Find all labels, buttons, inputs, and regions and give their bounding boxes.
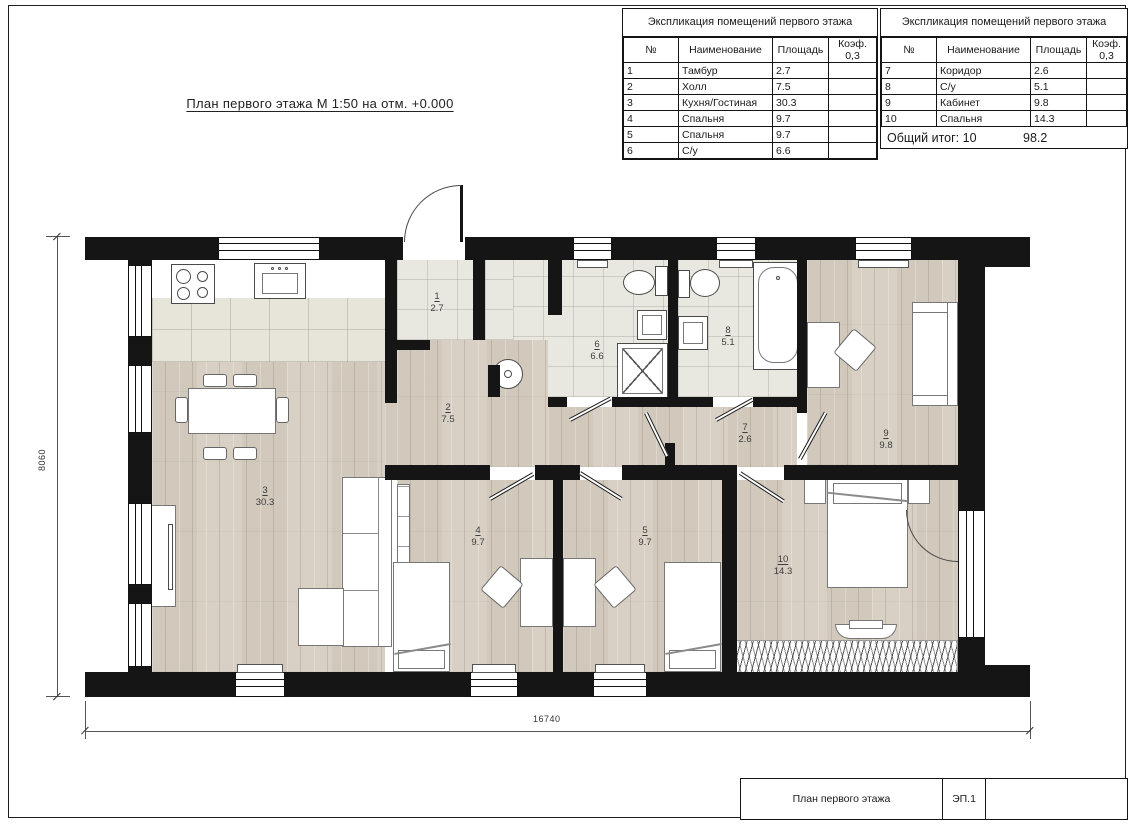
table-cell: 1	[624, 63, 679, 79]
wall-segment	[85, 237, 218, 260]
room-area: 7.5	[441, 414, 454, 425]
nightstand	[804, 478, 826, 504]
room-label-2: 2 7.5	[425, 402, 471, 427]
table-row: 9Кабинет9.8	[882, 95, 1127, 111]
wall-segment	[85, 672, 235, 697]
table-row: 5Спальня9.7	[624, 127, 877, 143]
wall-segment	[647, 672, 1030, 697]
room-area: 6.6	[590, 351, 603, 362]
table-cell: Спальня	[679, 111, 773, 127]
room-number: 4	[455, 525, 501, 537]
wall-segment	[756, 237, 855, 260]
table-cell: 6	[624, 143, 679, 159]
room-number: 7	[722, 422, 768, 434]
table-cell: Кабинет	[937, 95, 1031, 111]
table-grid: №НаименованиеПлощадьКоэф. 0,37Коридор2.6…	[881, 37, 1127, 127]
room-label-10: 10 14.3	[760, 554, 806, 579]
table-cell	[829, 111, 877, 127]
room-label-1: 1 2.7	[414, 291, 460, 316]
table-header-row: №НаименованиеПлощадьКоэф. 0,3	[882, 38, 1127, 63]
room-area: 9.7	[638, 537, 651, 548]
room-number: 2	[425, 402, 471, 414]
table-title: Экспликация помещений первого этажа	[881, 9, 1127, 37]
bed-footboard	[398, 650, 445, 669]
title-block: План первого этажа ЭП.1	[740, 778, 1128, 820]
table-row: 8С/у5.1	[882, 79, 1127, 95]
table-cell	[829, 95, 877, 111]
total-label: Общий итог: 10	[887, 131, 1023, 145]
wall-segment	[548, 397, 567, 407]
column-header: Коэф. 0,3	[1087, 38, 1127, 63]
table-cell: 8	[882, 79, 937, 95]
room-number: 1	[414, 291, 460, 303]
table-row: 10Спальня14.3	[882, 111, 1127, 127]
window	[593, 672, 647, 697]
window	[128, 265, 152, 337]
column-header: Площадь	[1031, 38, 1087, 63]
room-number: 10	[760, 554, 806, 566]
wall-segment	[548, 260, 562, 315]
dining-chair	[203, 374, 227, 387]
table-cell: 4	[624, 111, 679, 127]
wall-segment	[958, 260, 985, 510]
wall-segment	[385, 340, 430, 350]
window-sill	[595, 664, 645, 673]
balcony-door-window	[958, 510, 985, 638]
table-total-row: Общий итог: 10 98.2	[881, 127, 1127, 148]
table-cell: 6.6	[773, 143, 829, 159]
dimension-line-vertical	[57, 237, 58, 697]
table-cell: 7.5	[773, 79, 829, 95]
stove-burner	[197, 287, 208, 298]
dimension-line-horizontal	[85, 731, 1030, 732]
bed-footboard	[669, 650, 716, 669]
wall-segment	[535, 465, 580, 480]
room-number: 9	[863, 428, 909, 440]
wall-segment	[385, 260, 397, 403]
table-title: Экспликация помещений первого этажа	[623, 9, 877, 37]
title-block-empty-cell	[986, 779, 1127, 819]
table-cell: 5.1	[1031, 79, 1087, 95]
table-cell: Кухня/Гостиная	[679, 95, 773, 111]
table-row: 6С/у6.6	[624, 143, 877, 159]
title-block-sheet-code: ЭП.1	[942, 779, 986, 819]
title-block-drawing-name: План первого этажа	[741, 779, 942, 819]
nightstand	[908, 478, 930, 504]
table-cell: Спальня	[937, 111, 1031, 127]
table-cell: Спальня	[679, 127, 773, 143]
toilet-bowl	[623, 270, 655, 295]
dining-chair	[175, 397, 188, 423]
wall-segment	[622, 465, 722, 480]
desk	[807, 322, 840, 388]
window	[716, 237, 756, 260]
room-label-7: 7 2.6	[722, 422, 768, 447]
dining-chair	[233, 447, 257, 460]
bathtub-inner	[758, 267, 798, 363]
table-row: 2Холл7.5	[624, 79, 877, 95]
total-value: 98.2	[1023, 131, 1047, 145]
wall-segment	[385, 465, 490, 480]
room-number: 6	[574, 339, 620, 351]
room-label-4: 4 9.7	[455, 525, 501, 550]
table-cell: 2.6	[1031, 63, 1087, 79]
wall-segment	[912, 237, 1030, 260]
room-label-6: 6 6.6	[574, 339, 620, 364]
wall-segment	[668, 260, 678, 407]
hall-floor	[397, 340, 548, 467]
window-sill	[858, 260, 909, 268]
room-area: 2.7	[430, 303, 443, 314]
table-cell: 9.7	[773, 127, 829, 143]
table-cell: 10	[882, 111, 937, 127]
table-header-row: №НаименованиеПлощадьКоэф. 0,3	[624, 38, 877, 63]
sofa-chaise	[298, 588, 344, 646]
stove-burner	[197, 271, 208, 282]
table-cell	[829, 79, 877, 95]
table-cell: Тамбур	[679, 63, 773, 79]
room-area: 9.7	[471, 537, 484, 548]
faucet-dot	[271, 267, 274, 270]
table-cell: 9	[882, 95, 937, 111]
table-cell: С/у	[937, 79, 1031, 95]
table-cell	[829, 143, 877, 159]
dining-chair	[233, 374, 257, 387]
explication-table-2: Экспликация помещений первого этажа №Наи…	[880, 8, 1128, 149]
shower-tray-inner	[622, 348, 663, 394]
faucet-dot	[285, 267, 288, 270]
window-sill	[719, 260, 753, 268]
wall-segment	[128, 585, 152, 603]
sofa-back-line	[378, 478, 379, 646]
wall-segment	[320, 237, 403, 260]
shelf-tray	[849, 620, 883, 629]
table-cell: 9.8	[1031, 95, 1087, 111]
room-label-9: 9 9.8	[863, 428, 909, 453]
table-cell: 7	[882, 63, 937, 79]
window-sill	[472, 664, 516, 673]
room-area: 14.3	[774, 566, 793, 577]
dimension-width-label: 16740	[533, 714, 561, 724]
room-label-5: 5 9.7	[622, 525, 668, 550]
table-row: 3Кухня/Гостиная30.3	[624, 95, 877, 111]
boiler-center	[504, 370, 512, 378]
window-sill	[577, 260, 608, 268]
table-cell	[829, 127, 877, 143]
wall-segment	[612, 237, 716, 260]
table-cell	[1087, 63, 1127, 79]
wall-segment	[553, 480, 563, 672]
table-cell	[1087, 111, 1127, 127]
window	[235, 672, 285, 697]
desk	[520, 558, 553, 627]
table-cell: 9.7	[773, 111, 829, 127]
wall-segment	[285, 672, 470, 697]
room-number: 3	[242, 485, 288, 497]
column-header: №	[882, 38, 937, 63]
office-sofa-back	[947, 302, 958, 406]
hall-opening-floor	[385, 400, 397, 467]
table-grid: №НаименованиеПлощадьКоэф. 0,31Тамбур2.72…	[623, 37, 877, 159]
room-area: 9.8	[879, 440, 892, 451]
wall-segment	[668, 397, 713, 407]
wall-segment	[722, 465, 737, 480]
window	[573, 237, 612, 260]
wall-segment	[465, 237, 573, 260]
desk	[563, 558, 596, 627]
faucet-dot	[278, 267, 281, 270]
table-cell: 14.3	[1031, 111, 1087, 127]
room-label-8: 8 5.1	[705, 325, 751, 350]
room-area: 5.1	[721, 337, 734, 348]
column-header: Коэф. 0,3	[829, 38, 877, 63]
kitchen-sink-bowl	[262, 273, 298, 294]
rug	[727, 640, 958, 673]
table-cell	[1087, 95, 1127, 111]
room-number: 5	[622, 525, 668, 537]
table-cell: С/у	[679, 143, 773, 159]
table-cell: 2	[624, 79, 679, 95]
stove-burner	[177, 287, 190, 300]
dimension-height-label: 8060	[37, 449, 47, 471]
wall-segment	[722, 480, 737, 672]
wall-segment	[518, 672, 593, 697]
window	[470, 672, 518, 697]
table-cell	[829, 63, 877, 79]
washbasin-bowl	[683, 322, 703, 344]
washbasin-bowl	[642, 315, 662, 335]
wall-segment	[958, 638, 985, 672]
room-number: 8	[705, 325, 751, 337]
niche-floor	[485, 260, 513, 340]
column-header: Площадь	[773, 38, 829, 63]
window	[128, 603, 152, 667]
sofa-cushion-line	[343, 590, 379, 591]
dining-table	[188, 388, 276, 434]
explication-table-1: Экспликация помещений первого этажа №Наи…	[622, 8, 878, 160]
table-cell: 2.7	[773, 63, 829, 79]
dimension-extension	[85, 701, 86, 739]
wall-segment	[128, 433, 152, 503]
dining-chair	[203, 447, 227, 460]
table-cell: 3	[624, 95, 679, 111]
wall-segment	[473, 260, 485, 340]
tv	[168, 524, 173, 590]
dining-chair	[276, 397, 289, 423]
table-cell: Коридор	[937, 63, 1031, 79]
window	[855, 237, 912, 260]
column-header: Наименование	[937, 38, 1031, 63]
sofa-cushion-line	[343, 533, 379, 534]
toilet-bowl	[690, 269, 720, 297]
table-cell: 5	[624, 127, 679, 143]
drawing-title: План первого этажа М 1:50 на отм. +0.000	[150, 96, 490, 111]
wall-segment	[797, 260, 807, 413]
room-label-3: 3 30.3	[242, 485, 288, 510]
column-header: Наименование	[679, 38, 773, 63]
window	[128, 365, 152, 433]
dimension-extension	[1030, 701, 1031, 739]
sheet: { "drawing_title": "План первого этажа М…	[0, 0, 1135, 826]
window	[128, 503, 152, 585]
bathtub-drain	[776, 276, 780, 280]
room-area: 2.6	[738, 434, 751, 445]
table-row: 1Тамбур2.7	[624, 63, 877, 79]
wall-segment	[128, 337, 152, 365]
room-area: 30.3	[256, 497, 275, 508]
table-cell: Холл	[679, 79, 773, 95]
wall-segment	[784, 465, 958, 480]
toilet-tank	[655, 266, 668, 296]
sofa	[342, 477, 392, 647]
wall-segment	[488, 365, 500, 397]
table-cell	[1087, 79, 1127, 95]
table-row: 4Спальня9.7	[624, 111, 877, 127]
table-row: 7Коридор2.6	[882, 63, 1127, 79]
window	[218, 237, 320, 260]
stove-burner	[176, 269, 191, 284]
toilet-tank	[678, 270, 690, 298]
column-header: №	[624, 38, 679, 63]
kitchen-tile-floor	[152, 298, 385, 362]
window-sill	[237, 664, 283, 673]
wall-segment	[612, 397, 668, 407]
table-cell: 30.3	[773, 95, 829, 111]
